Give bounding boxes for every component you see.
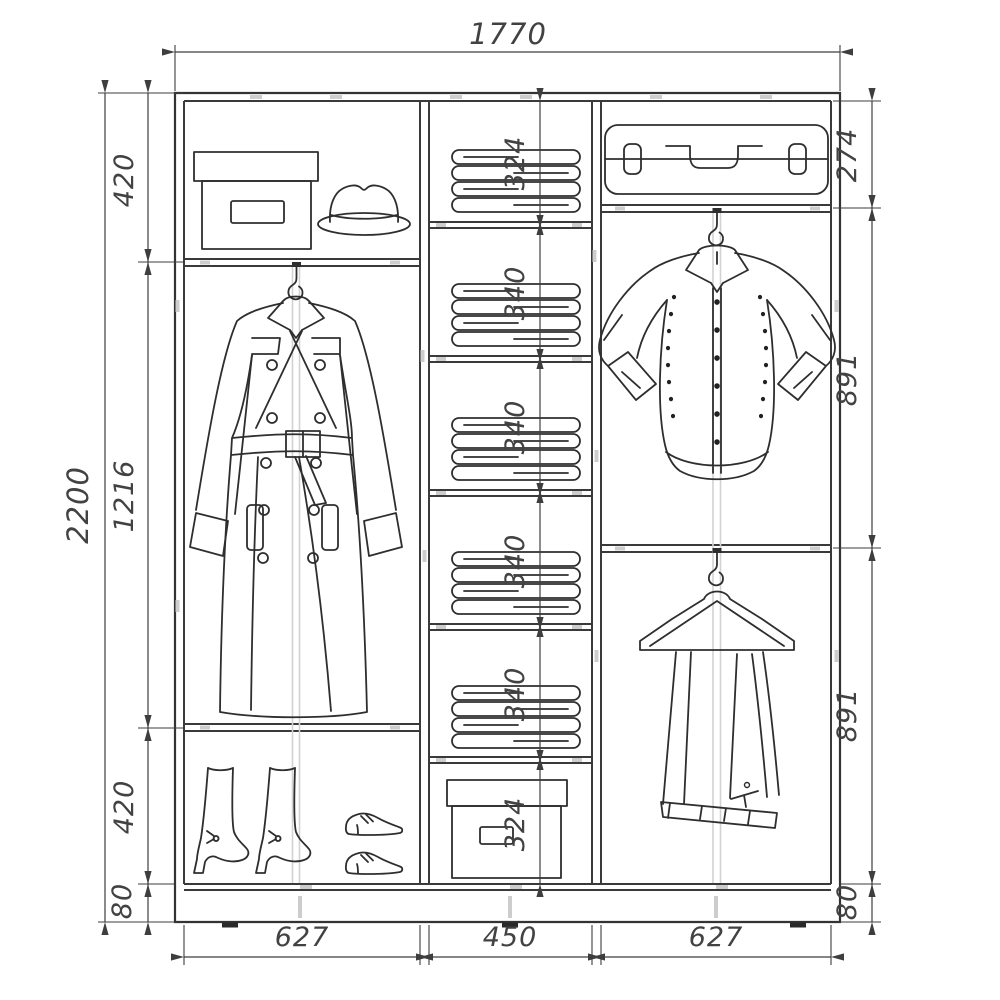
fedora-hat-icon (318, 185, 410, 235)
coat-buttons (258, 360, 325, 563)
label-mid-324-top: 324 (500, 136, 531, 191)
coat-body (220, 331, 367, 717)
dimension-labels: 1770 2200 420 1216 420 80 324 340 340 34… (61, 17, 863, 953)
label-overall-width: 1770 (469, 17, 547, 51)
label-mid-340-3: 340 (500, 534, 531, 589)
label-left-420-top: 420 (109, 153, 140, 208)
boot-icon (194, 768, 248, 873)
label-bottom-627-right: 627 (689, 922, 744, 953)
wooden-hanger (640, 592, 794, 651)
label-right-80: 80 (832, 884, 863, 920)
boot-icon (256, 768, 310, 873)
hat-brim (318, 213, 410, 235)
wardrobe-technical-drawing: 1770 2200 420 1216 420 80 324 340 340 34… (0, 0, 1000, 1000)
label-left-420-bottom: 420 (109, 780, 140, 835)
coat-hook-icon (288, 267, 302, 299)
coat-pocket-right (322, 505, 338, 550)
suitcase-icon (605, 125, 828, 194)
box-body (202, 181, 311, 249)
dimension-lines (105, 52, 872, 957)
label-left-1216: 1216 (109, 460, 140, 533)
label-bottom-450: 450 (483, 922, 538, 953)
label-mid-340-4: 340 (500, 667, 531, 722)
label-right-274: 274 (832, 128, 863, 183)
box-label-window (231, 201, 284, 223)
label-left-80: 80 (107, 883, 138, 919)
pair-of-shoes-icon (346, 813, 402, 874)
label-bottom-627-left: 627 (275, 922, 330, 953)
coat-collar (268, 297, 324, 339)
shirt-collar (686, 246, 748, 293)
storage-box-top (194, 152, 318, 249)
hat-band (331, 215, 397, 219)
label-mid-340-2: 340 (500, 400, 531, 455)
trousers-on-hanger-icon (640, 548, 794, 828)
shirt-on-hook-icon (599, 208, 835, 479)
drawing-canvas: 1770 2200 420 1216 420 80 324 340 340 34… (0, 0, 1000, 1000)
suitcase-handle (666, 146, 762, 168)
trench-coat-icon (190, 262, 402, 717)
trouser-button (745, 783, 750, 788)
shoe-icon (346, 852, 402, 874)
label-right-891-upper: 891 (832, 352, 863, 407)
label-right-891-lower: 891 (832, 688, 863, 743)
box-lid (194, 152, 318, 181)
label-mid-340-1: 340 (500, 266, 531, 321)
coat-sleeves (190, 303, 402, 556)
label-overall-height: 2200 (61, 466, 95, 544)
shirt-sleeves (599, 253, 835, 400)
label-mid-324-bottom: 324 (500, 797, 531, 852)
shoe-icon (346, 813, 402, 835)
connector-marks (178, 97, 837, 918)
